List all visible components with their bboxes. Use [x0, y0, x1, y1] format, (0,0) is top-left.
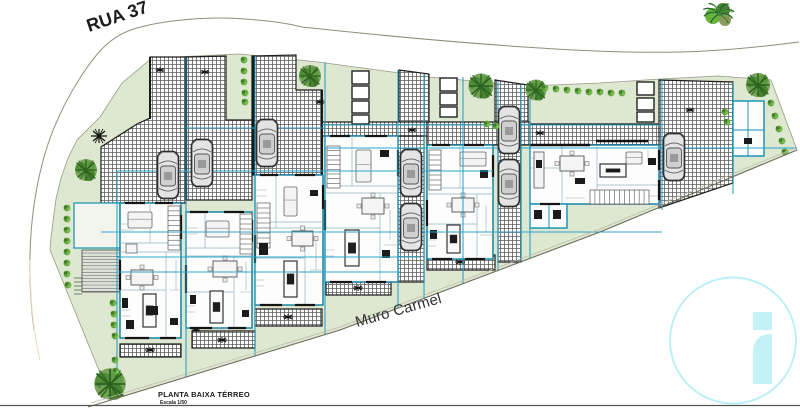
svg-text:PLANTA BAIXA TÉRREO: PLANTA BAIXA TÉRREO — [158, 390, 250, 399]
